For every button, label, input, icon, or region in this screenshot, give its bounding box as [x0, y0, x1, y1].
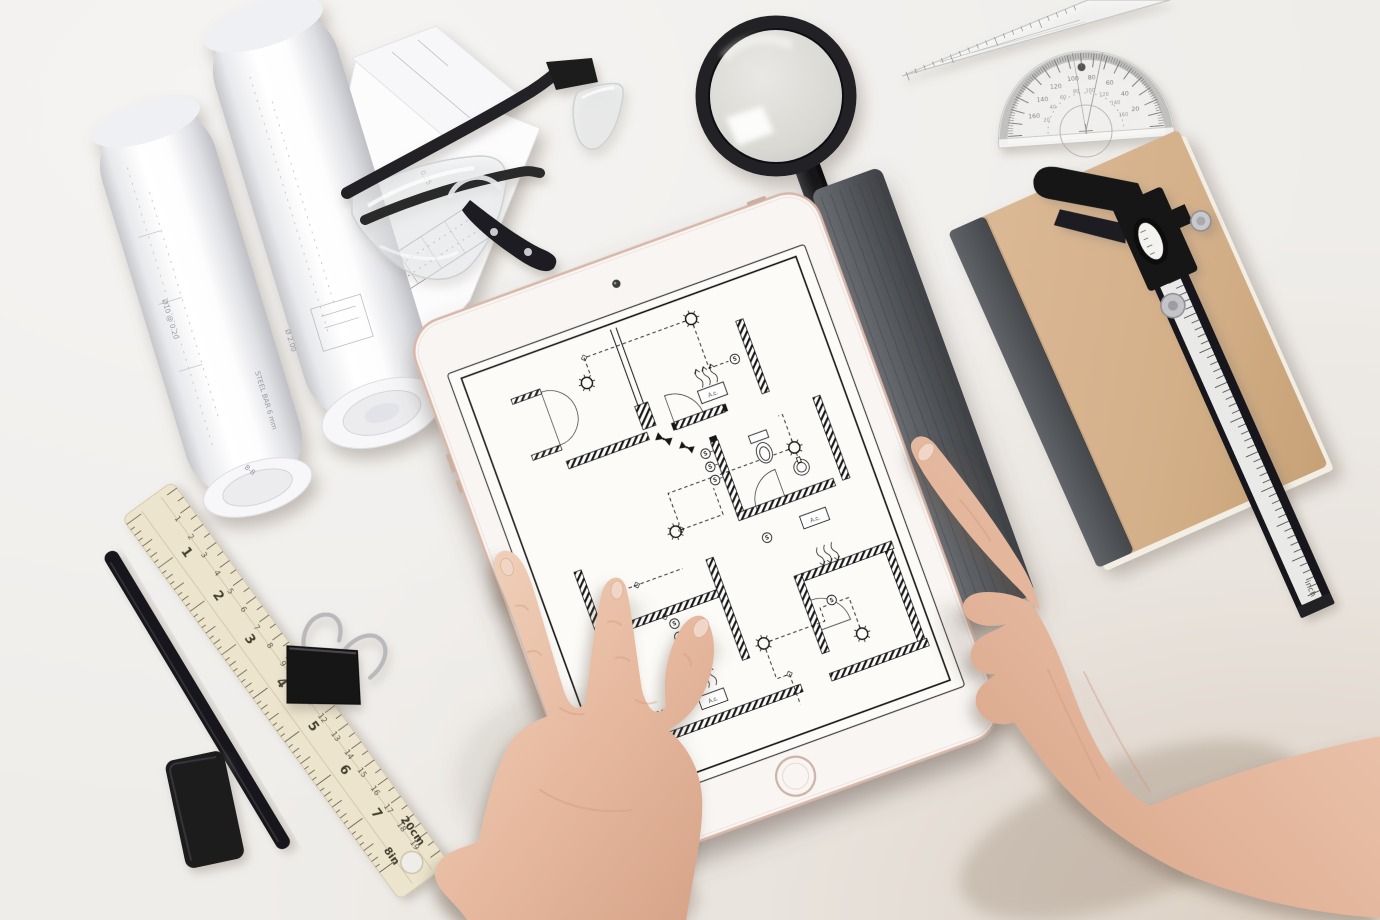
protractor-degree-number: 80 — [1088, 74, 1096, 82]
protractor-degree-number: 80 — [1073, 89, 1080, 95]
protractor-degree-number: 20 — [1043, 117, 1050, 123]
protractor-degree-number: 140 — [1036, 96, 1048, 104]
protractor-degree-number: 120 — [1099, 92, 1109, 99]
protractor-degree-number: 40 — [1121, 90, 1129, 98]
protractor-degree-number: 60 — [1106, 79, 1114, 87]
protractor-degree-number: 60 — [1060, 95, 1067, 101]
protractor-degree-number: 140 — [1111, 100, 1121, 107]
protractor-degree-number: 20 — [1131, 106, 1139, 114]
protractor-degree-number: 40 — [1050, 105, 1057, 111]
scene-canvas: 0.25 Ø10 @ 0.20 Ø 2.00 STEEL BAR 6 mm B-… — [0, 0, 1380, 920]
protractor-degree-number: 100 — [1067, 75, 1079, 83]
protractor-degree-number: 160 — [1028, 113, 1040, 121]
photo-scene: 0.25 Ø10 @ 0.20 Ø 2.00 STEEL BAR 6 mm B-… — [0, 0, 1380, 920]
protractor-degree-number: 120 — [1050, 83, 1062, 91]
protractor-degree-number: 160 — [1119, 112, 1129, 119]
protractor-degree-number: 100 — [1085, 88, 1095, 95]
